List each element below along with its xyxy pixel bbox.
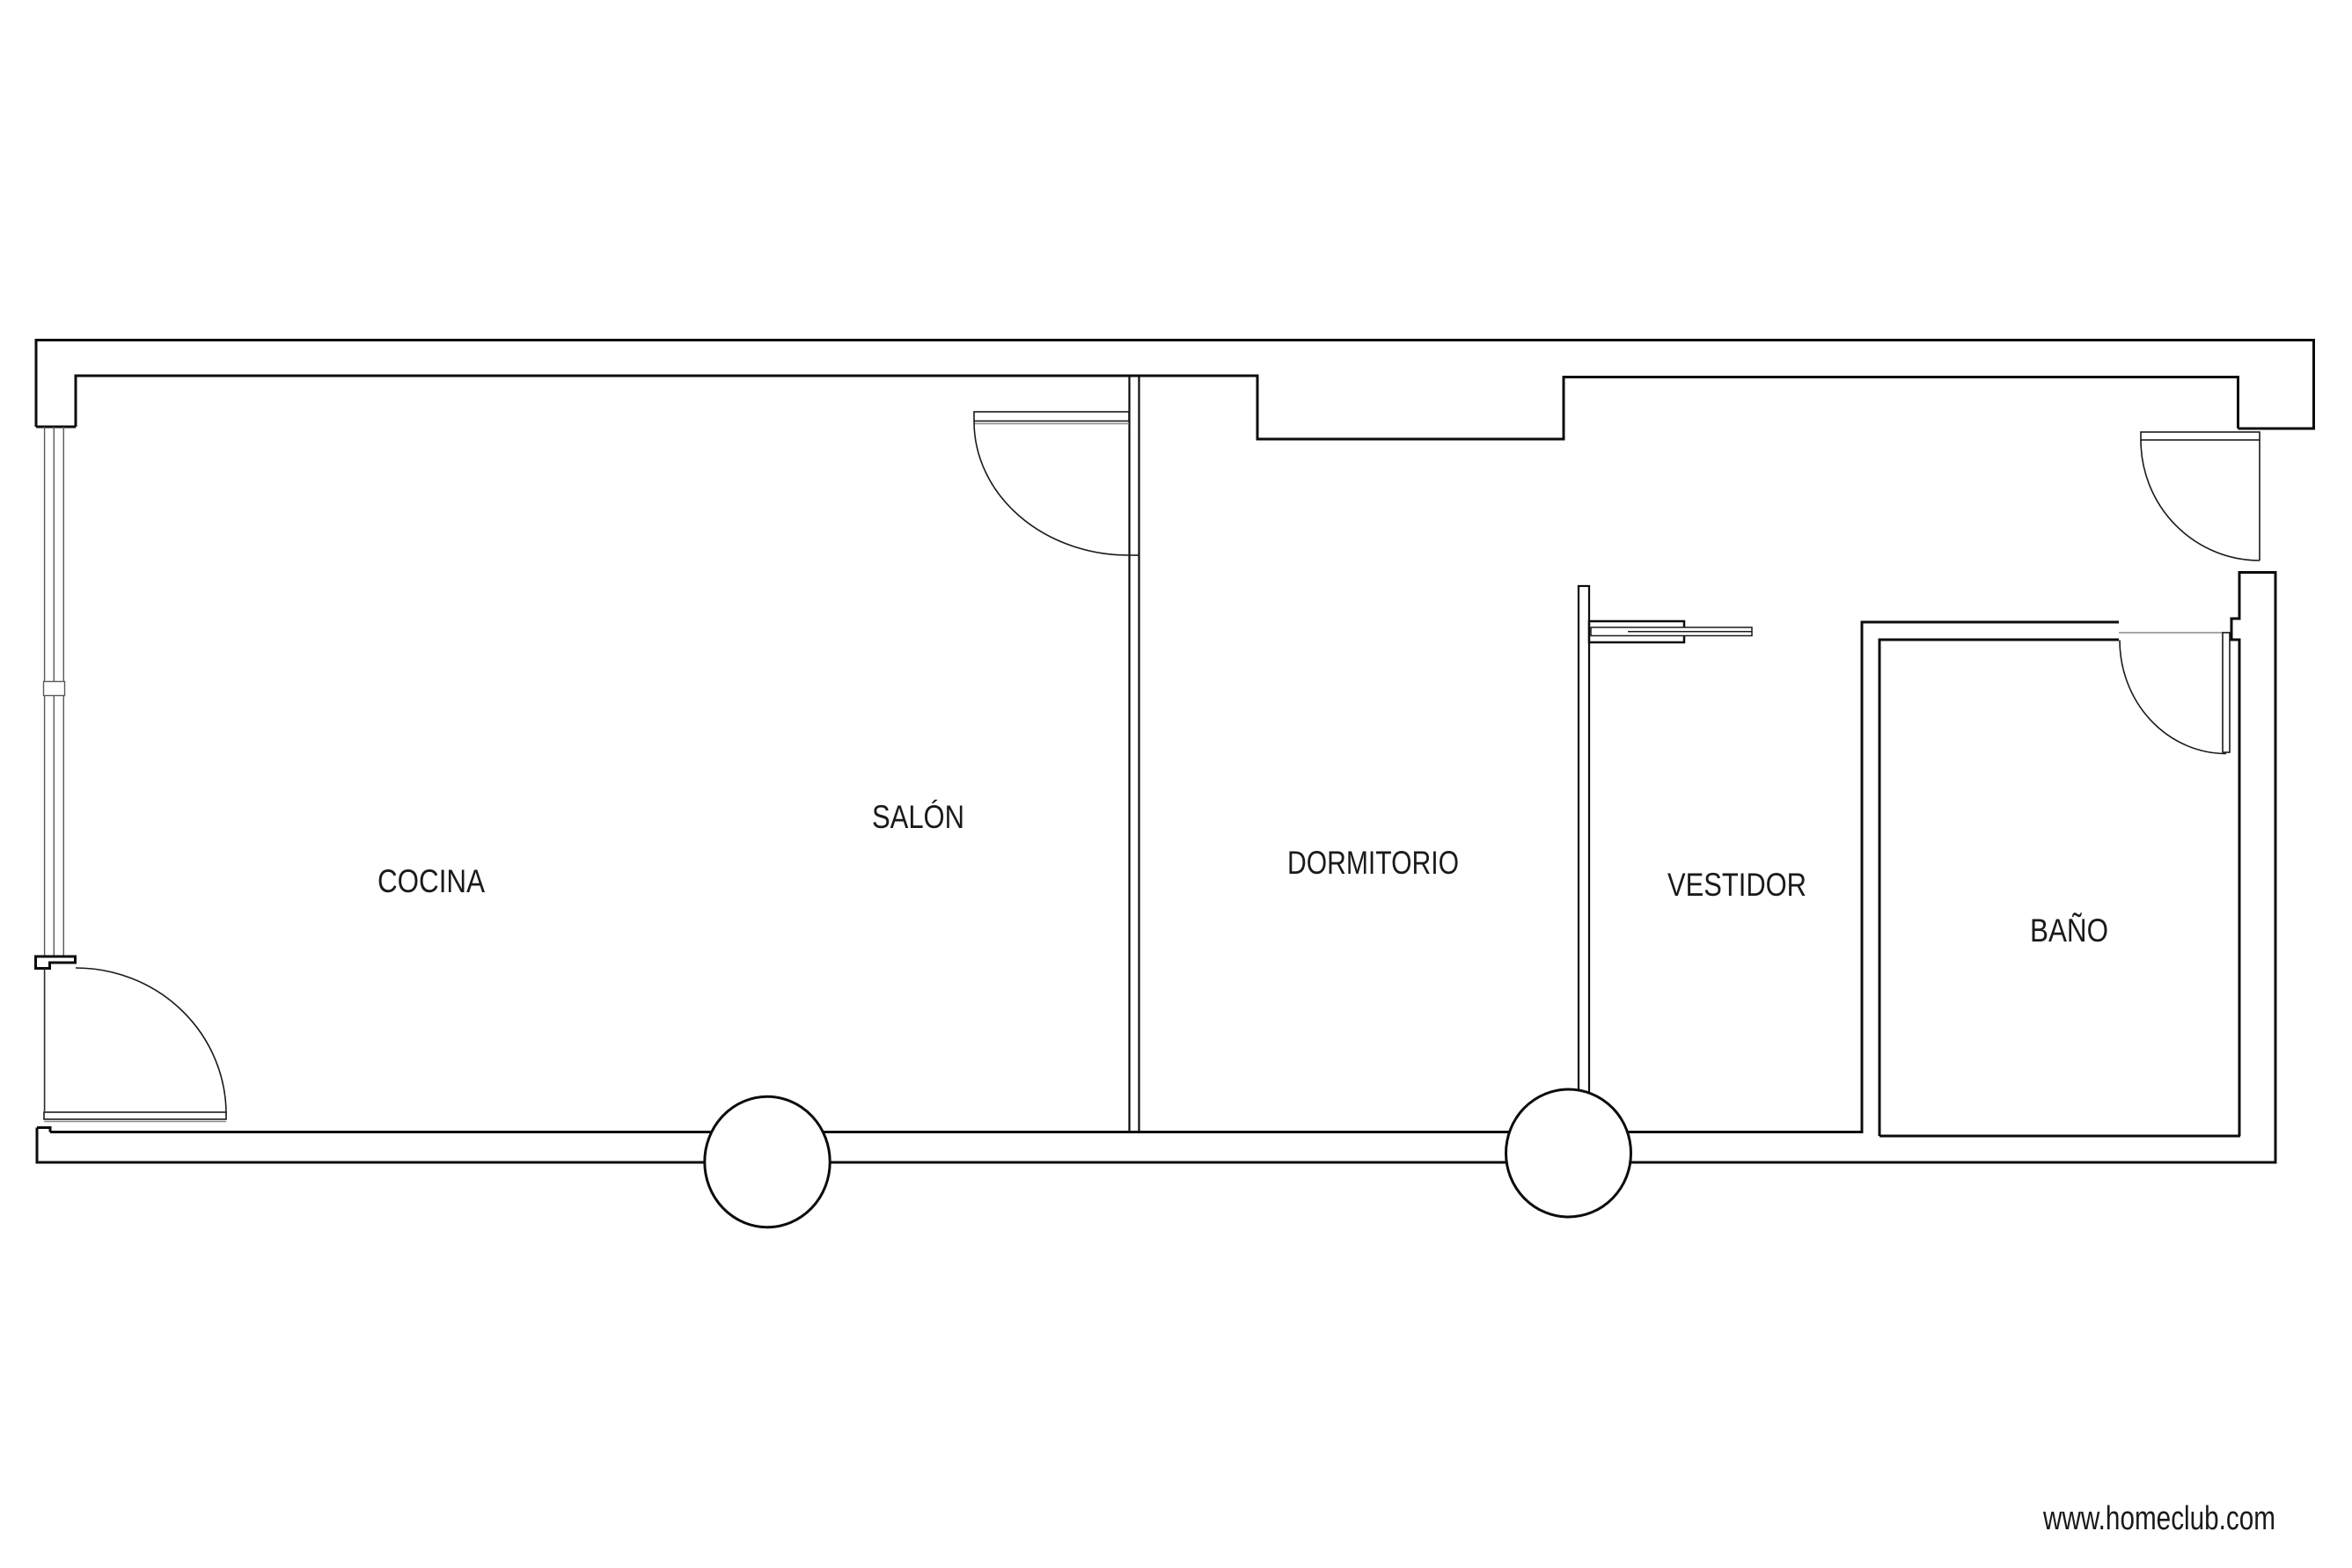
svg-text:COCINA: COCINA	[377, 863, 485, 899]
svg-text:www.homeclub.com: www.homeclub.com	[2042, 1500, 2275, 1537]
svg-text:SALÓN: SALÓN	[872, 799, 964, 835]
svg-text:BAÑO: BAÑO	[2030, 912, 2108, 949]
svg-text:VESTIDOR: VESTIDOR	[1667, 867, 1806, 903]
svg-text:DORMITORIO: DORMITORIO	[1287, 845, 1459, 881]
